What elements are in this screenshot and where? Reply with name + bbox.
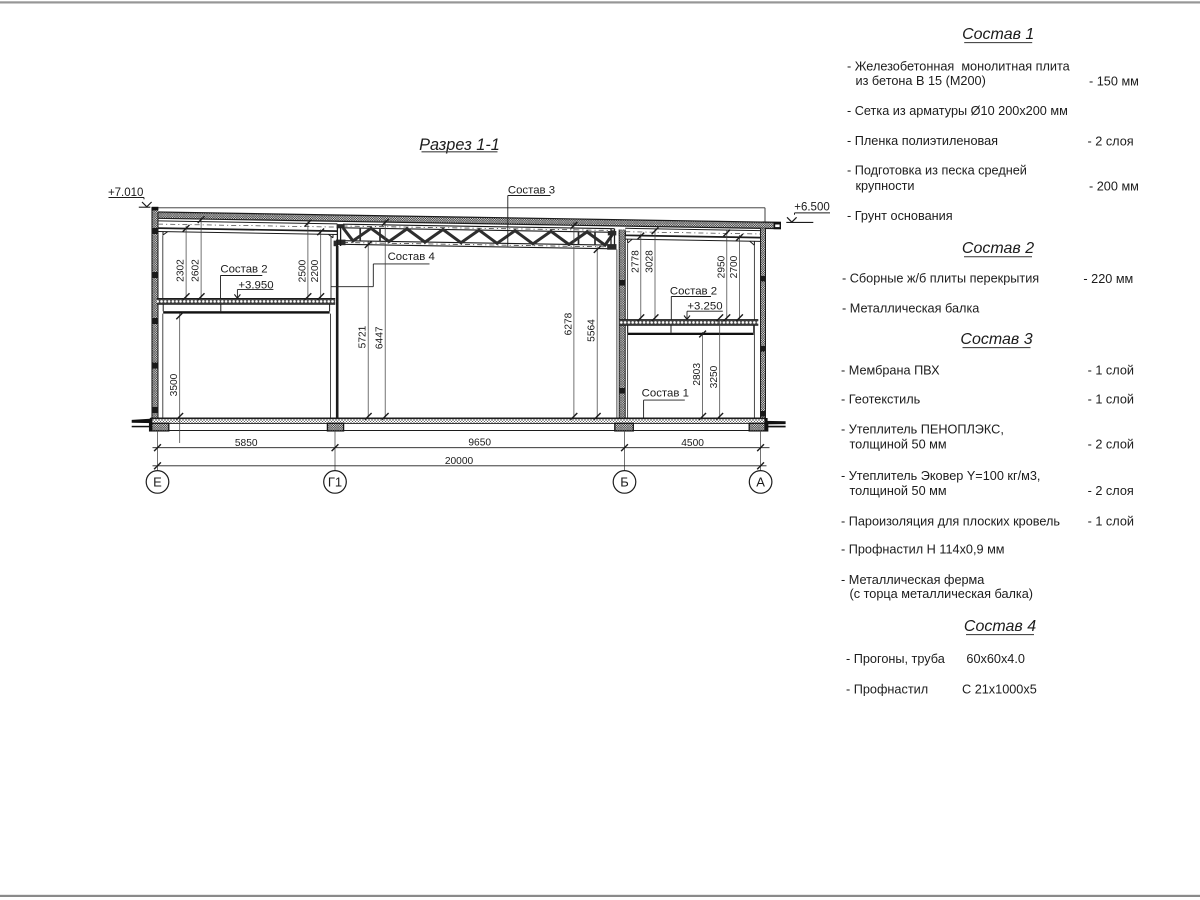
svg-text:Состав 4: Состав 4 [964, 618, 1036, 635]
svg-text:2200: 2200 [310, 259, 321, 282]
svg-text:- 1 слой: - 1 слой [1088, 392, 1134, 406]
svg-text:Разрез 1-1: Разрез 1-1 [419, 136, 500, 154]
svg-text:Е: Е [153, 474, 162, 489]
svg-text:(с торца металлическая балка): (с торца металлическая балка) [850, 587, 1034, 601]
svg-text:6278: 6278 [563, 312, 574, 335]
svg-text:+6.500: +6.500 [794, 202, 830, 214]
svg-text:2500: 2500 [297, 259, 308, 282]
svg-text:- 1 слой: - 1 слой [1088, 364, 1134, 378]
svg-text:3028: 3028 [645, 250, 656, 273]
svg-text:- Профнастил Н 114х0,9 мм: - Профнастил Н 114х0,9 мм [841, 543, 1005, 557]
svg-text:- Железобетонная монолитная п: - Железобетонная монолитная плита [847, 60, 1071, 74]
svg-text:- Геотекстиль: - Геотекстиль [841, 392, 921, 406]
svg-text:9650: 9650 [468, 437, 491, 448]
svg-text:Б: Б [620, 474, 629, 489]
svg-text:- Профнастил: - Профнастил [846, 682, 928, 696]
svg-text:3250: 3250 [709, 365, 720, 388]
svg-text:2778: 2778 [630, 250, 641, 273]
svg-text:из бетона В 15 (М200): из бетона В 15 (М200) [856, 74, 986, 88]
svg-text:- 1 слой: - 1 слой [1088, 514, 1134, 528]
svg-text:Состав 4: Состав 4 [388, 251, 435, 263]
svg-text:- 2 слой: - 2 слой [1088, 437, 1134, 451]
svg-text:2602: 2602 [191, 259, 202, 282]
svg-text:- 2 слоя: - 2 слоя [1088, 484, 1134, 498]
svg-text:Состав 1: Состав 1 [962, 26, 1034, 43]
svg-text:А: А [756, 474, 765, 489]
svg-text:Г1: Г1 [328, 474, 342, 489]
svg-text:20000: 20000 [445, 456, 474, 467]
svg-text:6447: 6447 [375, 326, 386, 349]
svg-text:- Прогоны, труба: - Прогоны, труба [846, 652, 946, 666]
svg-text:- Грунт основания: - Грунт основания [847, 209, 953, 223]
svg-text:- Пленка полиэтиленовая: - Пленка полиэтиленовая [847, 134, 998, 148]
svg-text:2302: 2302 [176, 259, 187, 282]
svg-text:- Мембрана ПВХ: - Мембрана ПВХ [841, 364, 940, 378]
svg-text:- Металлическая ферма: - Металлическая ферма [841, 573, 985, 587]
svg-text:крупности: крупности [856, 179, 915, 193]
svg-text:С 21х1000х5: С 21х1000х5 [962, 682, 1037, 696]
svg-text:60х60х4.0: 60х60х4.0 [966, 652, 1025, 666]
svg-text:- Пароизоляция для плоских кро: - Пароизоляция для плоских кровель [841, 514, 1060, 528]
svg-text:Состав 2: Состав 2 [962, 240, 1034, 257]
svg-text:2803: 2803 [692, 363, 703, 386]
svg-text:толщиной 50 мм: толщиной 50 мм [850, 484, 947, 498]
svg-text:- Сборные ж/б плиты перекрытия: - Сборные ж/б плиты перекрытия [842, 271, 1039, 285]
svg-text:- 220 мм: - 220 мм [1083, 272, 1133, 286]
svg-text:- Утеплитель Эковер Y=100 кг/м: - Утеплитель Эковер Y=100 кг/м3, [841, 469, 1040, 483]
svg-text:- 2 слоя: - 2 слоя [1088, 135, 1134, 149]
svg-text:Состав 1: Состав 1 [642, 388, 689, 400]
svg-text:- 200 мм: - 200 мм [1089, 180, 1139, 194]
svg-text:2700: 2700 [729, 255, 740, 278]
svg-text:- 150 мм: - 150 мм [1089, 75, 1139, 89]
svg-text:2950: 2950 [716, 255, 727, 278]
svg-text:3500: 3500 [169, 373, 180, 396]
svg-text:- Сетка из арматуры Ø10 200х20: - Сетка из арматуры Ø10 200х200 мм [847, 104, 1068, 118]
svg-text:- Утеплитель ПЕНОПЛЭКС,: - Утеплитель ПЕНОПЛЭКС, [841, 423, 1004, 437]
svg-text:Состав 2: Состав 2 [670, 285, 717, 297]
svg-text:5564: 5564 [587, 319, 598, 342]
svg-text:4500: 4500 [681, 438, 704, 449]
svg-text:5721: 5721 [358, 325, 369, 348]
svg-text:Состав 3: Состав 3 [960, 331, 1032, 348]
svg-text:толщиной 50 мм: толщиной 50 мм [850, 437, 947, 451]
svg-text:Состав 2: Состав 2 [220, 263, 267, 275]
svg-text:- Подготовка из песка средней: - Подготовка из песка средней [847, 164, 1027, 178]
svg-text:5850: 5850 [235, 438, 258, 449]
svg-text:Состав 3: Состав 3 [508, 185, 555, 197]
svg-text:- Металлическая балка: - Металлическая балка [842, 301, 980, 315]
